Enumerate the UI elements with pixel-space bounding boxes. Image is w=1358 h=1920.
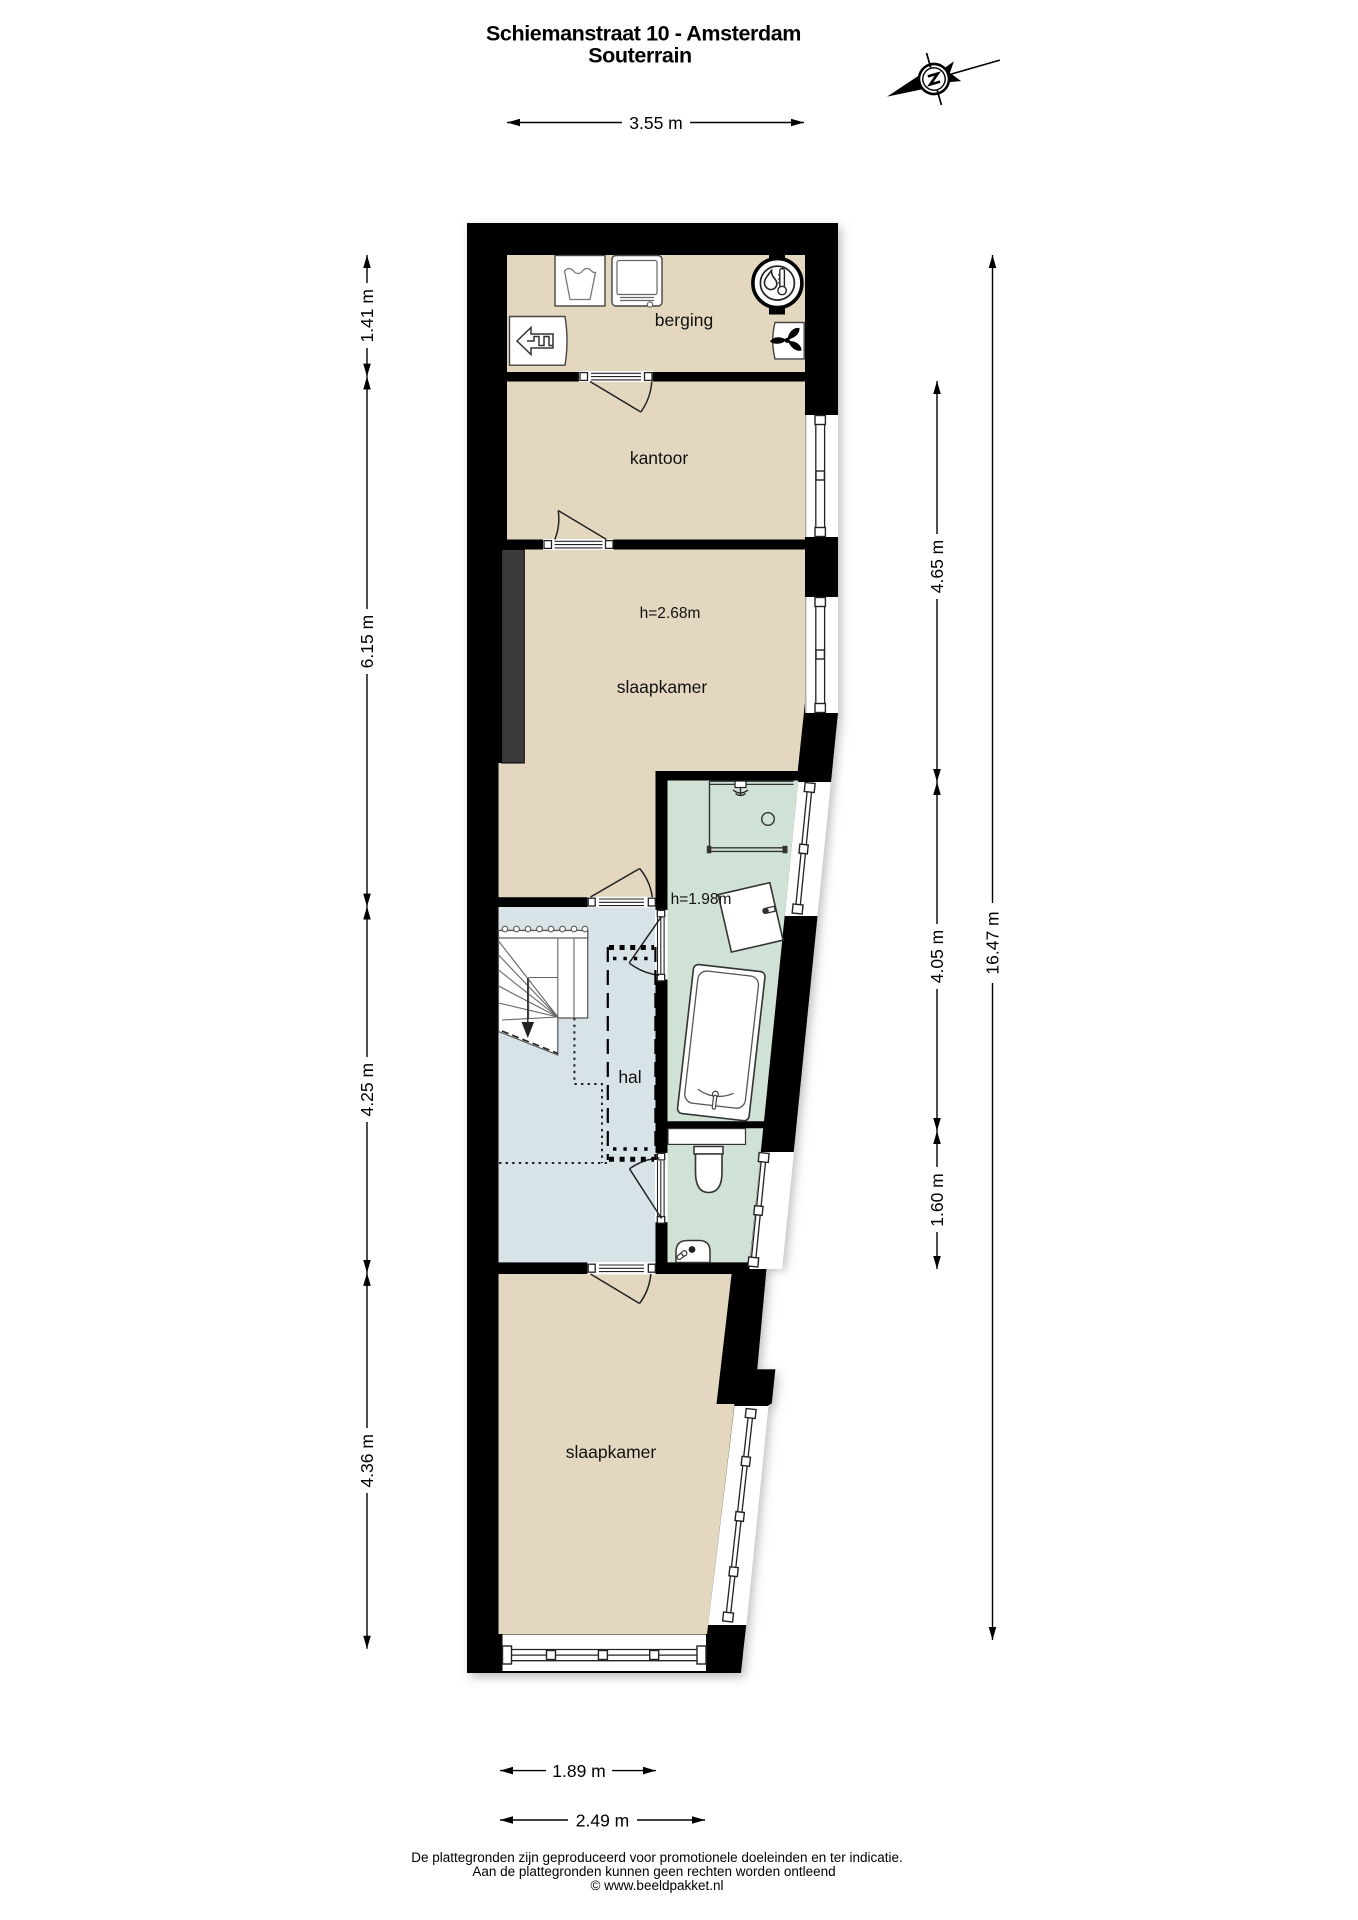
svg-text:berging: berging: [655, 310, 713, 330]
svg-text:6.15 m: 6.15 m: [357, 615, 377, 669]
svg-text:Aan de plattegronden kunnen ge: Aan de plattegronden kunnen geen rechten…: [472, 1864, 835, 1879]
svg-text:hal: hal: [618, 1067, 641, 1087]
svg-text:2.49 m: 2.49 m: [576, 1810, 630, 1830]
svg-text:4.65 m: 4.65 m: [927, 540, 947, 594]
svg-text:1.41 m: 1.41 m: [357, 289, 377, 343]
svg-text:4.05 m: 4.05 m: [927, 930, 947, 984]
svg-text:Schiemanstraat 10 - Amsterdam: Schiemanstraat 10 - Amsterdam: [486, 22, 801, 46]
svg-text:4.36 m: 4.36 m: [357, 1434, 377, 1488]
svg-text:De plattegronden zijn geproduc: De plattegronden zijn geproduceerd voor …: [411, 1850, 903, 1865]
svg-text:4.25 m: 4.25 m: [357, 1063, 377, 1117]
svg-text:h=2.68m: h=2.68m: [640, 605, 701, 622]
svg-text:kantoor: kantoor: [630, 448, 689, 468]
svg-text:Souterrain: Souterrain: [588, 44, 692, 68]
svg-text:slaapkamer: slaapkamer: [566, 1442, 657, 1462]
svg-text:1.89 m: 1.89 m: [552, 1761, 606, 1781]
svg-text:© www.beeldpakket.nl: © www.beeldpakket.nl: [590, 1878, 723, 1893]
svg-text:16.47 m: 16.47 m: [983, 911, 1003, 974]
svg-text:3.55 m: 3.55 m: [629, 113, 683, 133]
svg-text:1.60 m: 1.60 m: [927, 1173, 947, 1227]
svg-text:slaapkamer: slaapkamer: [617, 677, 708, 697]
svg-text:h=1.98m: h=1.98m: [671, 891, 732, 908]
